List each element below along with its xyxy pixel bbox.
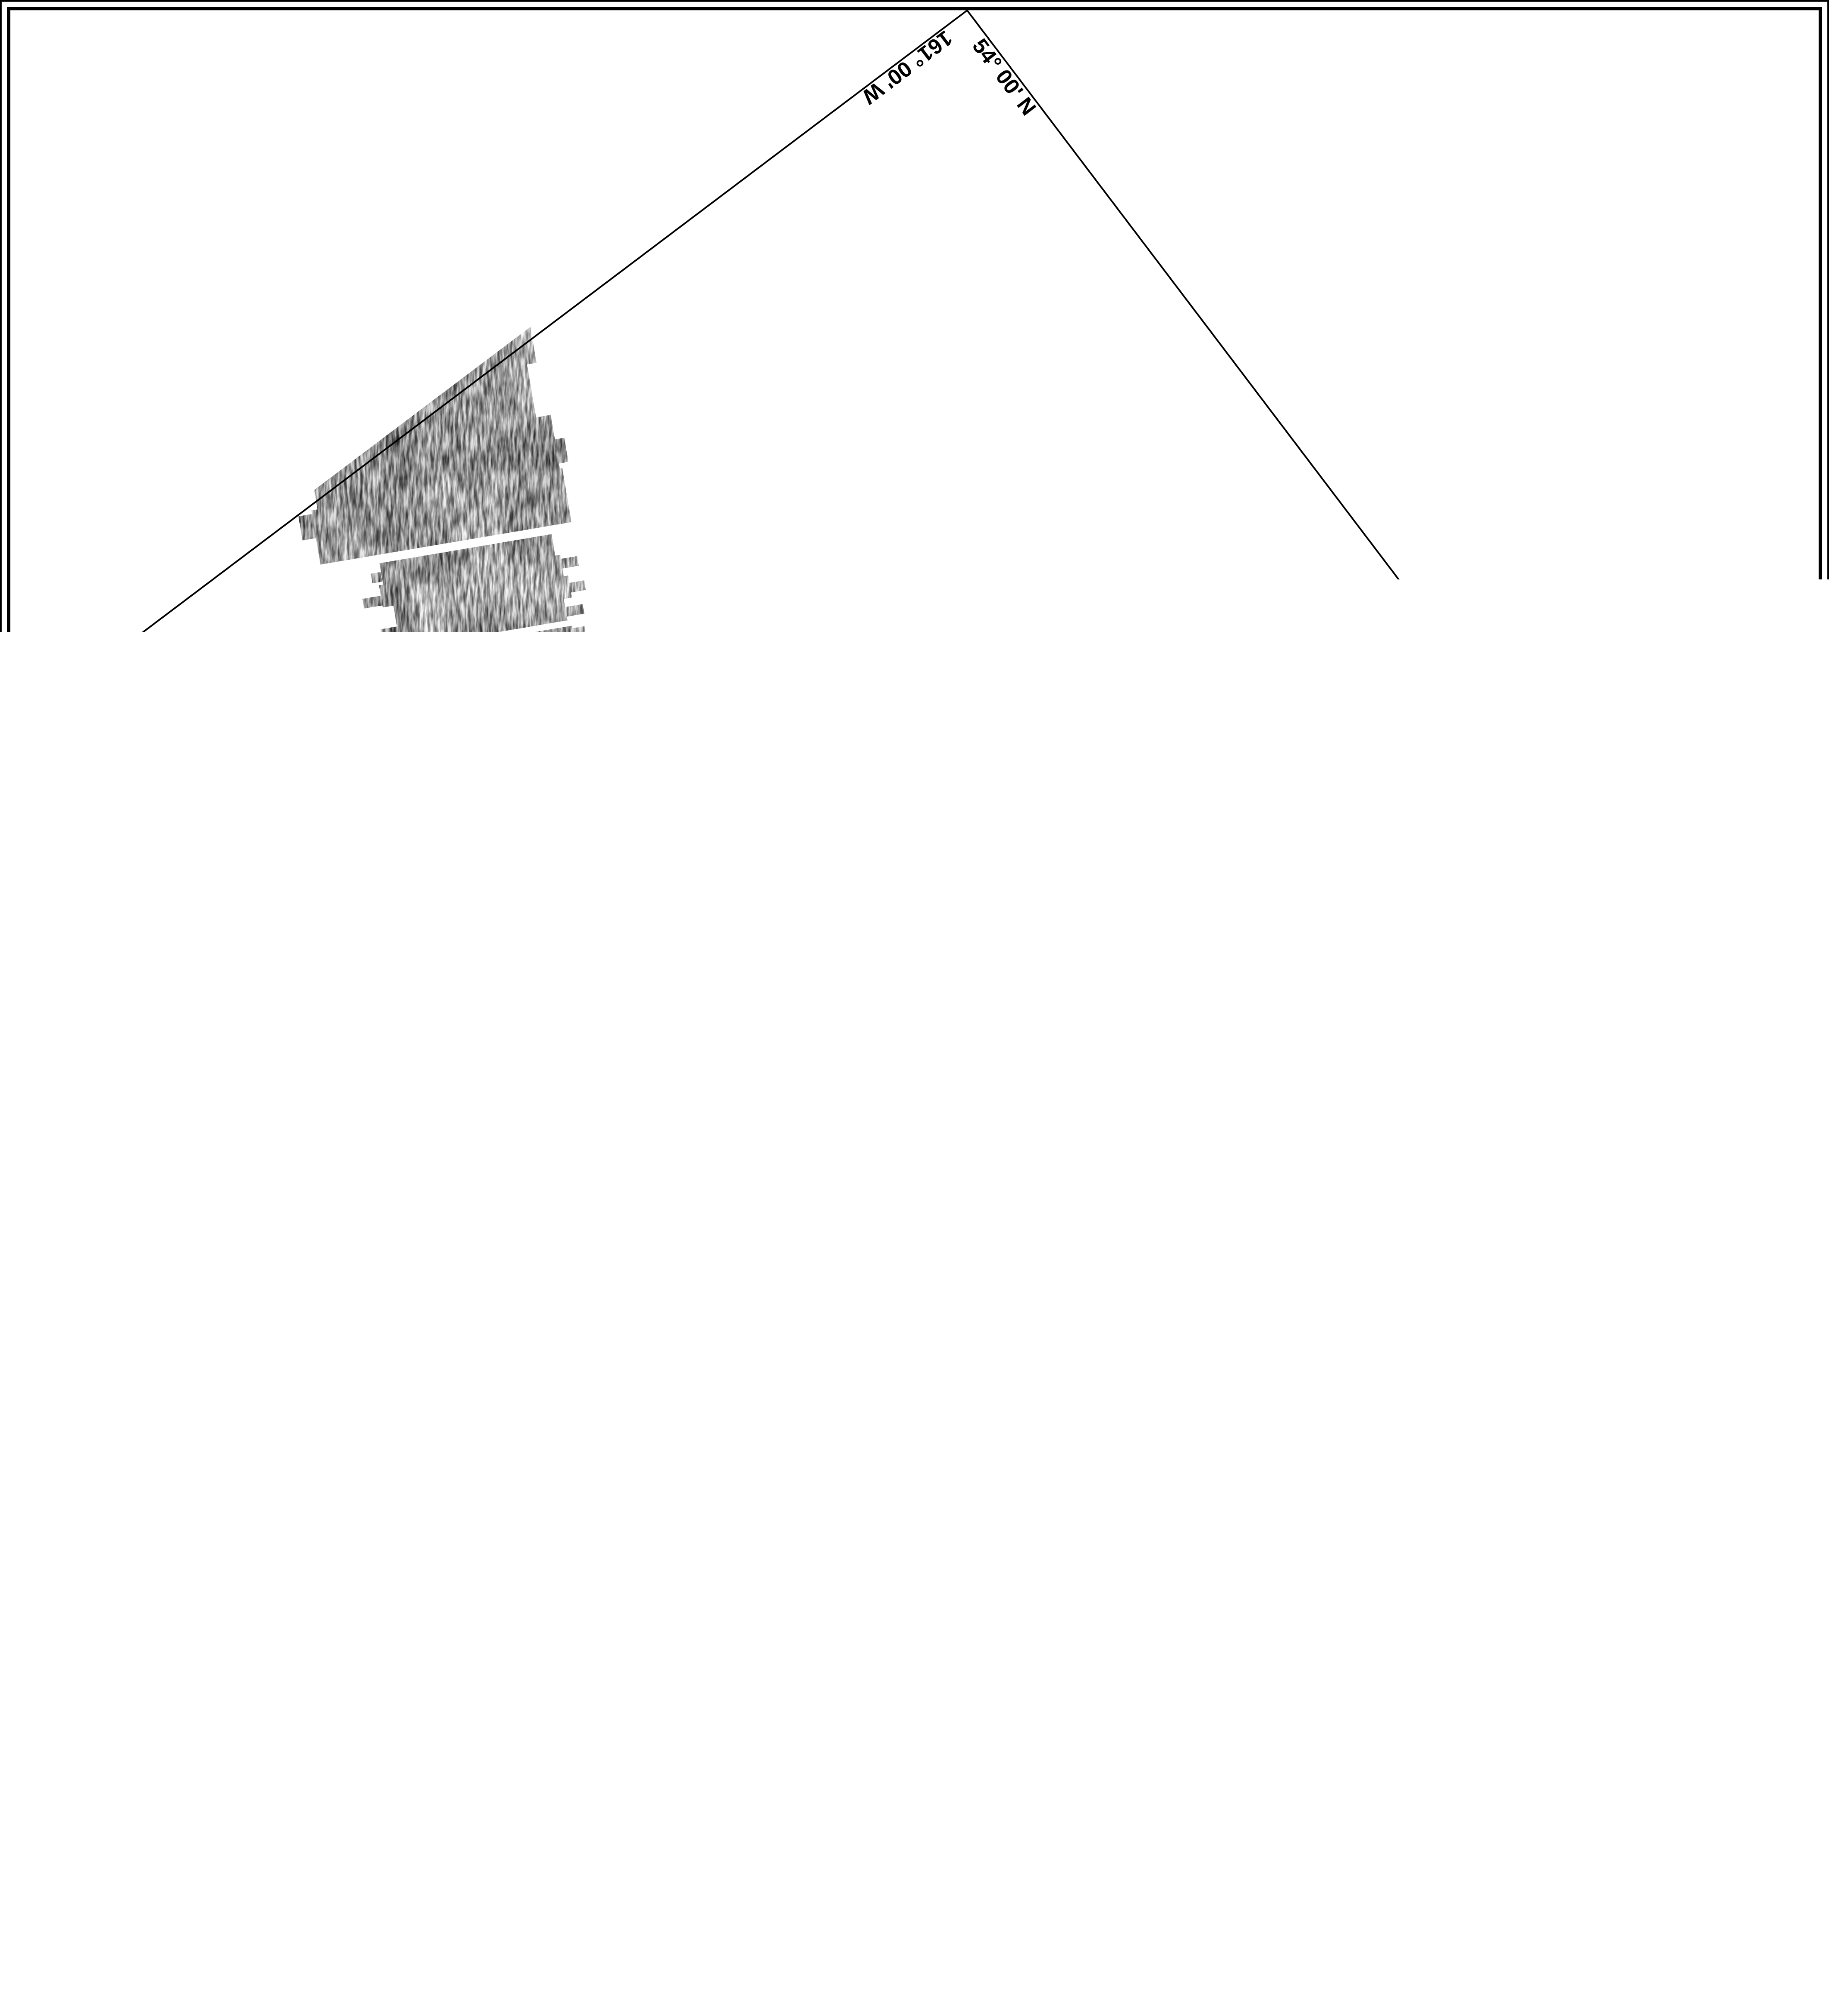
svg-text:N: N	[1698, 1094, 1757, 1150]
svg-text:54° 00' N: 54° 00' N	[968, 34, 1041, 120]
svg-text:161° 00' W: 161° 00' W	[857, 26, 957, 109]
svg-text:53° 45' N: 53° 45' N	[797, 1759, 870, 1844]
